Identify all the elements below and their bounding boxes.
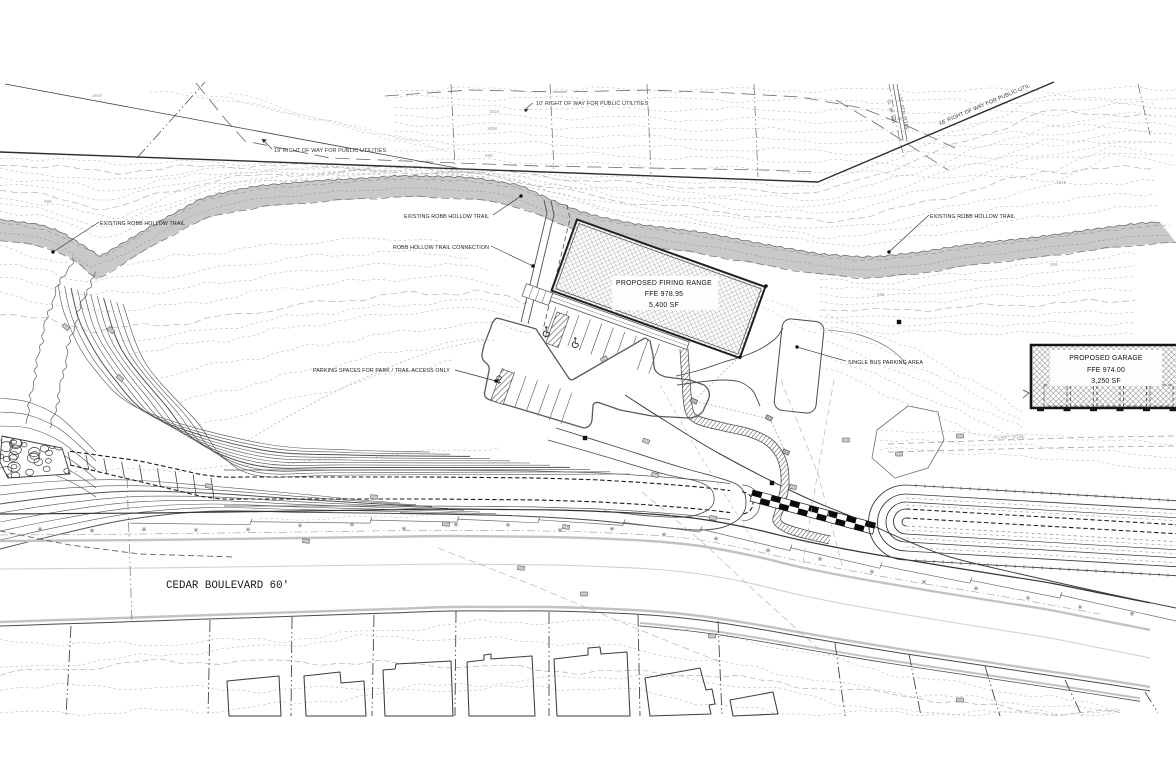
svg-text:FFE 978.95: FFE 978.95 (645, 291, 684, 298)
svg-text:1040: 1040 (92, 95, 103, 99)
svg-text:980: 980 (877, 294, 885, 298)
svg-text:<-42" PIPE: <-42" PIPE (995, 435, 1025, 441)
svg-text:EXISTING ROBB HOLLOW TRAIL: EXISTING ROBB HOLLOW TRAIL (404, 214, 489, 220)
svg-text:PARKING SPACES FOR PARK / TRAI: PARKING SPACES FOR PARK / TRAIL ACCESS O… (313, 368, 450, 374)
svg-text:1010: 1010 (897, 118, 908, 122)
svg-text:1015: 1015 (1056, 182, 1067, 186)
svg-text:CEDAR BOULEVARD 60': CEDAR BOULEVARD 60' (166, 580, 289, 592)
svg-text:19' RIGHT OF WAY FOR PUBLIC UT: 19' RIGHT OF WAY FOR PUBLIC UTILITIES (274, 148, 386, 154)
svg-text:990: 990 (1050, 264, 1058, 268)
svg-text:10' RIGHT OF WAY FOR PUBLIC UT: 10' RIGHT OF WAY FOR PUBLIC UTILITIES (536, 101, 648, 107)
svg-text:PROPOSED FIRING RANGE: PROPOSED FIRING RANGE (616, 280, 712, 287)
svg-text:1010: 1010 (489, 111, 500, 115)
svg-text:FFE 974.00: FFE 974.00 (1087, 367, 1125, 374)
svg-text:PROPOSED GARAGE: PROPOSED GARAGE (1069, 355, 1143, 362)
svg-text:3,250 SF: 3,250 SF (1091, 378, 1121, 385)
svg-text:990: 990 (44, 201, 52, 205)
svg-text:ROBB HOLLOW TRAIL CONNECTION: ROBB HOLLOW TRAIL CONNECTION (393, 245, 489, 251)
svg-text:EXISTING ROBB HOLLOW TRAIL: EXISTING ROBB HOLLOW TRAIL (100, 221, 185, 227)
svg-text:990: 990 (485, 155, 493, 159)
svg-text:5,400 SF: 5,400 SF (649, 302, 679, 309)
svg-text:SINGLE BUS PARKING AREA: SINGLE BUS PARKING AREA (848, 360, 923, 366)
svg-text:1000: 1000 (487, 128, 498, 132)
svg-text:EXISTING ROBB HOLLOW TRAIL: EXISTING ROBB HOLLOW TRAIL (930, 214, 1015, 220)
